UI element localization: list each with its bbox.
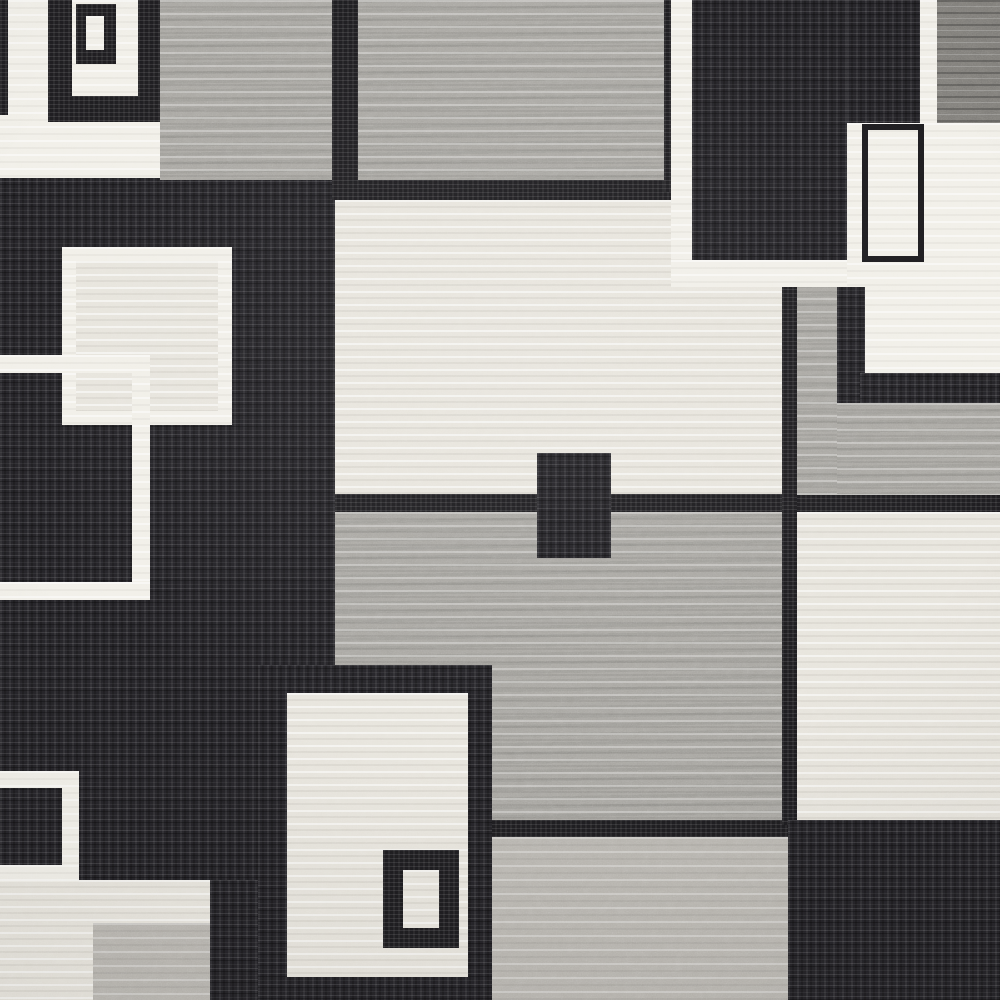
topright-black-square xyxy=(692,0,847,262)
left-outline-square-bottom xyxy=(0,582,150,600)
bottom-left-lightgray-block xyxy=(93,923,217,1000)
right-dark-vline xyxy=(782,285,797,825)
lower-dark-hstrip xyxy=(490,820,788,837)
topright-black-square-ext xyxy=(847,0,920,125)
topleft-edge-dark-sliver xyxy=(0,0,8,115)
center-small-dark-rect xyxy=(537,453,611,558)
bottomleft-white-frame-bottom xyxy=(0,865,79,882)
right-gray-below-L xyxy=(837,403,1000,495)
topleft-small-square-center xyxy=(86,16,104,50)
left-outline-square-top xyxy=(0,355,150,373)
top-gray-block-right xyxy=(358,0,668,185)
topright-outlined-rect xyxy=(862,124,924,262)
right-ivory-block xyxy=(797,512,1000,823)
bottom-center-gray-block xyxy=(490,837,788,1000)
rug-photo xyxy=(0,0,1000,1000)
top-dark-strip xyxy=(332,180,672,200)
right-L-frame-horizontal xyxy=(860,373,1000,403)
topright-white-strip xyxy=(920,0,937,125)
mid-dark-hstrip xyxy=(335,494,1000,512)
right-gray-column xyxy=(797,285,837,495)
topright-white-frame-left xyxy=(671,0,692,287)
bottom-motif-small-center xyxy=(403,870,439,928)
right-white-pocket xyxy=(865,283,1000,375)
bottom-right-black-block xyxy=(788,820,1000,1000)
topright-darkgray-corner xyxy=(937,0,1000,123)
left-outline-square-right xyxy=(132,355,150,600)
topright-frame-outer-dark-line xyxy=(664,0,671,192)
top-gray-block-left xyxy=(160,0,332,180)
top-dark-divider xyxy=(332,0,358,180)
